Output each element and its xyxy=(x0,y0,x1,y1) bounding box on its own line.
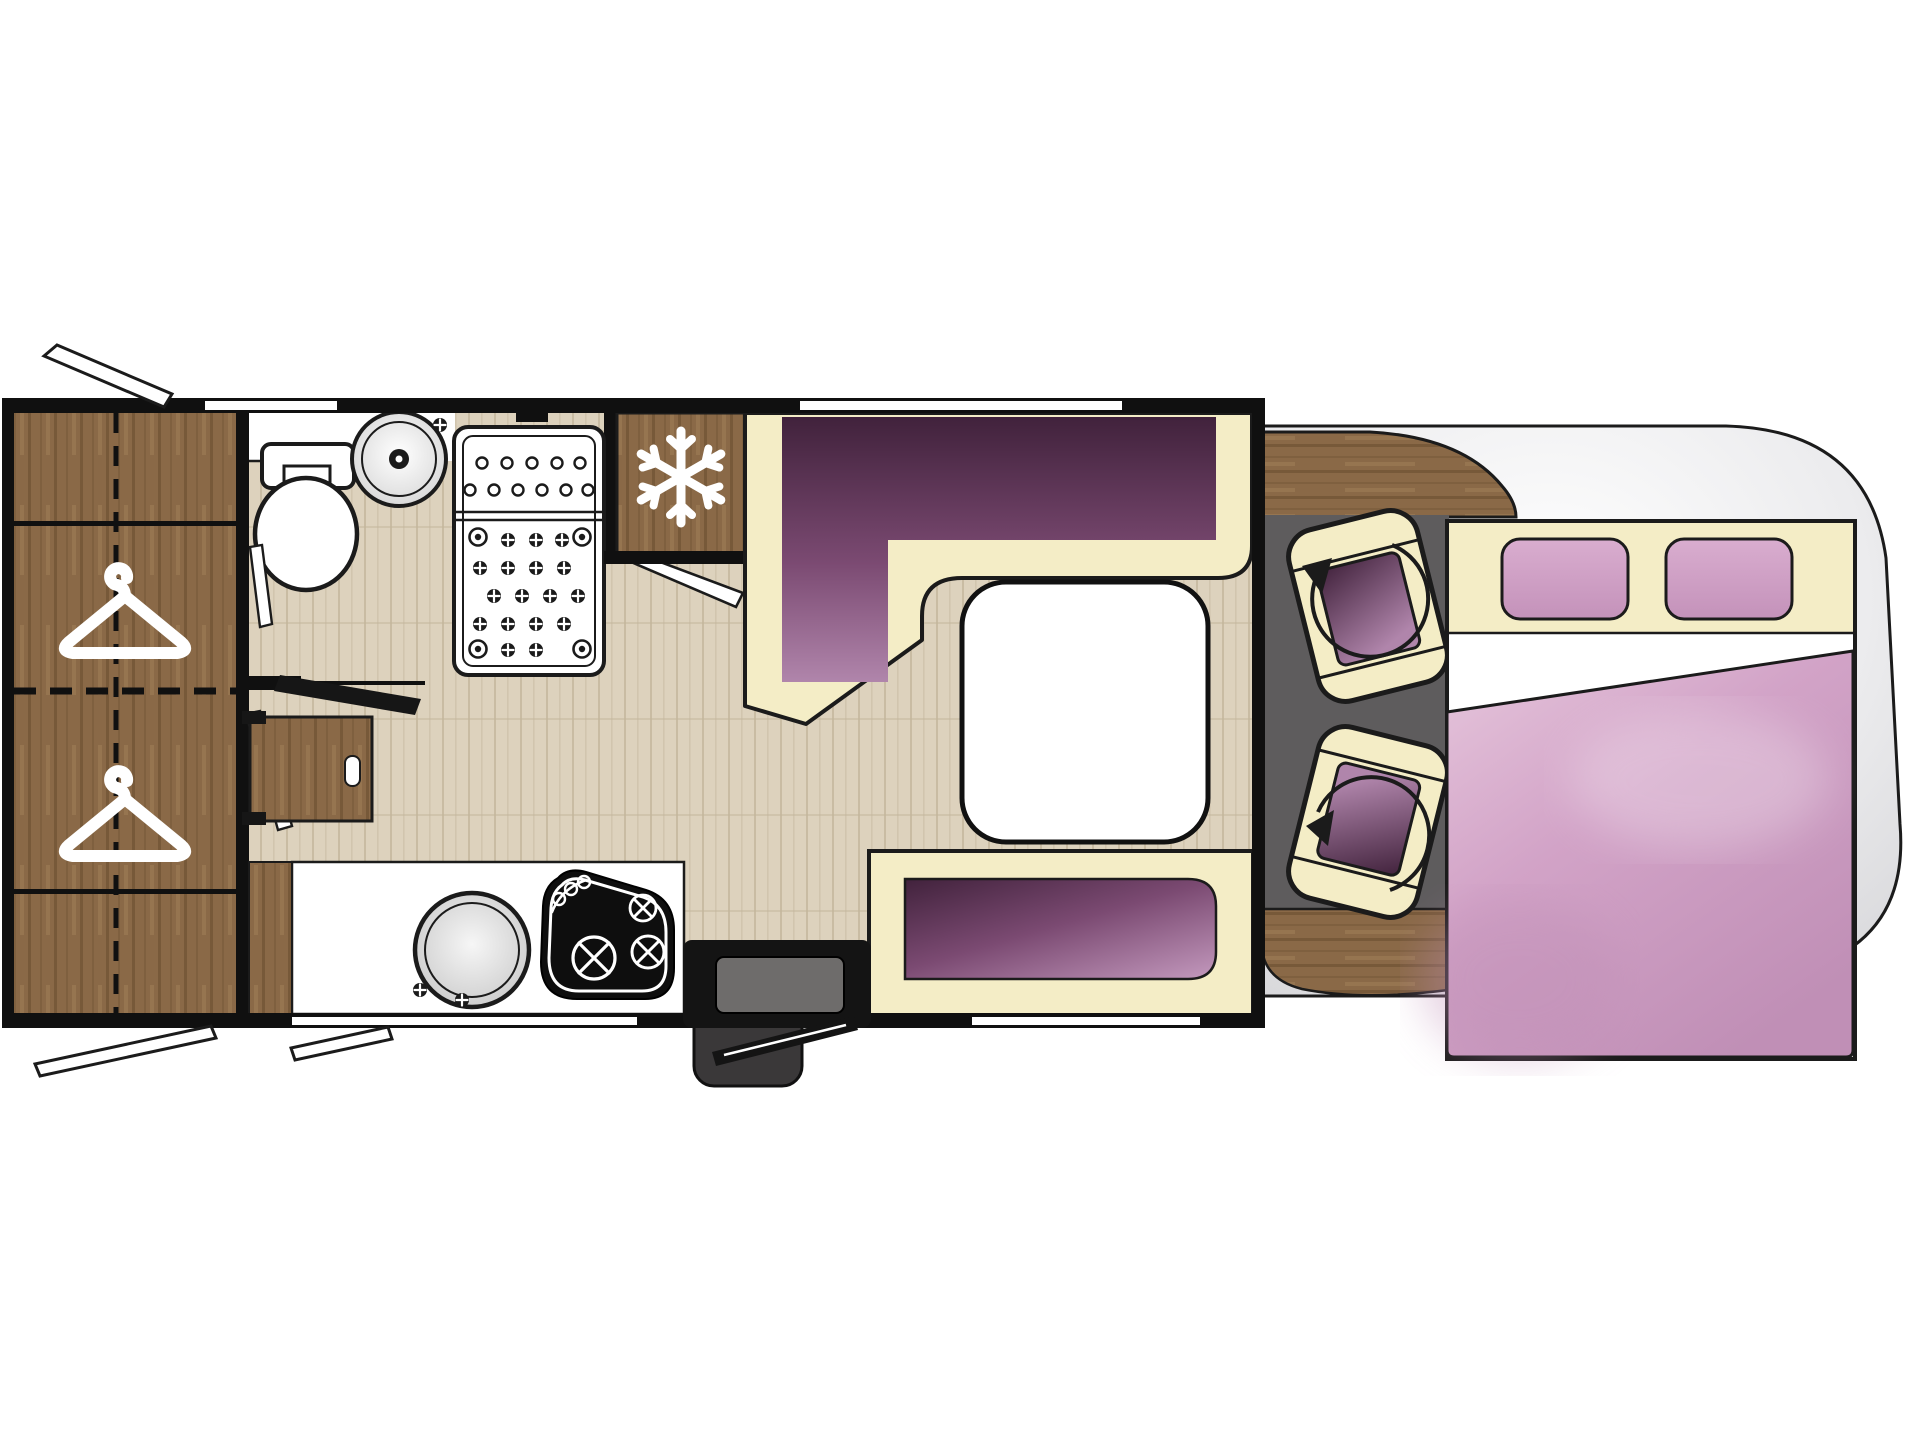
duvet-shade xyxy=(1420,900,1620,1060)
kitchen-wood-column xyxy=(249,862,292,1014)
entry-step-tread xyxy=(716,957,844,1013)
toilet-bowl xyxy=(255,478,357,590)
window-bottom-kitchen xyxy=(292,1017,637,1025)
basin-drain-hole xyxy=(396,456,403,463)
fridge-bottom-wall xyxy=(604,551,745,564)
dinette-table xyxy=(962,582,1208,842)
pillow-right xyxy=(1666,539,1792,619)
pillow-left xyxy=(1502,539,1628,619)
bench-cushion xyxy=(905,879,1216,979)
sink-tap-knob xyxy=(413,983,427,997)
window-bottom-bench xyxy=(972,1017,1200,1025)
kitchen-sink xyxy=(415,893,529,1007)
motorhome-floorplan xyxy=(0,0,1920,1440)
desk-handle xyxy=(345,756,360,786)
wall-fitting-tab xyxy=(516,404,548,422)
side-bench xyxy=(869,851,1253,1015)
fridge-cabinet xyxy=(604,413,745,564)
basin-tap xyxy=(433,418,447,432)
window-top-bathroom xyxy=(205,401,337,410)
double-bed xyxy=(1420,521,1855,1060)
rear-wardrobe xyxy=(14,413,249,1014)
wardrobe-shelf-line xyxy=(14,521,236,526)
kitchen xyxy=(249,862,684,1014)
desk-hinge xyxy=(242,711,266,724)
wardrobe-shelf-line xyxy=(14,889,236,894)
right-wall xyxy=(1252,398,1265,1028)
fold-out-desk xyxy=(242,711,372,825)
left-wall xyxy=(2,398,14,1028)
sink-tap-knob xyxy=(455,993,469,1007)
wardrobe-body xyxy=(14,413,236,1014)
duvet-highlight xyxy=(1570,710,1830,850)
floorplan-canvas xyxy=(0,0,1920,1440)
desk-hinge xyxy=(242,812,266,825)
window-top-dinette xyxy=(800,401,1122,410)
